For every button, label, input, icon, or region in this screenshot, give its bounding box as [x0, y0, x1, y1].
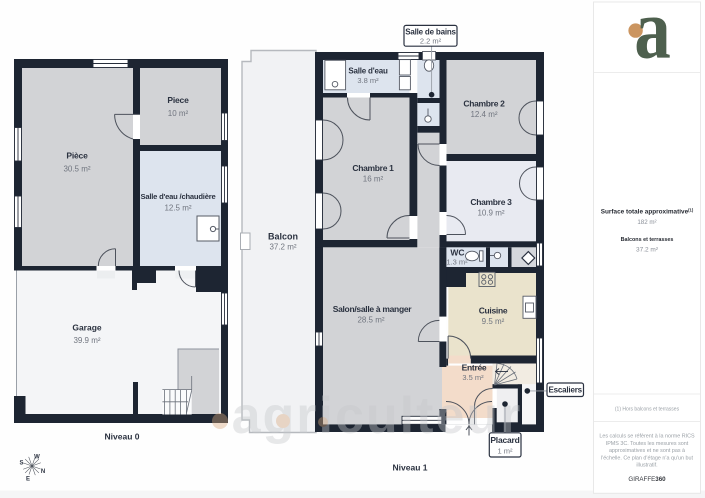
- svg-text:agriculteur: agriculteur: [232, 387, 523, 445]
- svg-text:Chambre 2: Chambre 2: [463, 99, 505, 109]
- svg-text:WC: WC: [450, 248, 464, 258]
- svg-text:Cuisine: Cuisine: [479, 306, 508, 316]
- svg-text:a: a: [634, 0, 671, 77]
- svg-text:S: S: [19, 461, 23, 467]
- svg-text:GIRAFFE360: GIRAFFE360: [628, 476, 666, 483]
- svg-text:16 m²: 16 m²: [363, 175, 384, 184]
- svg-text:Surface totale approximative(1: Surface totale approximative(1): [601, 208, 694, 216]
- svg-text:Garage: Garage: [72, 323, 102, 333]
- svg-text:Les calculs se réfèrent à la n: Les calculs se réfèrent à la norme RICS: [599, 434, 695, 440]
- svg-text:Salle d'eau: Salle d'eau: [348, 67, 388, 76]
- svg-text:illustratif.: illustratif.: [636, 463, 657, 469]
- svg-text:(1) Hors balcons et terrasses: (1) Hors balcons et terrasses: [615, 407, 680, 413]
- svg-text:10 m²: 10 m²: [168, 109, 189, 118]
- svg-text:IPMS 3C. Toutes les mesures so: IPMS 3C. Toutes les mesures sont: [606, 441, 689, 447]
- svg-text:Piece: Piece: [167, 95, 189, 105]
- svg-text:12.5 m²: 12.5 m²: [164, 204, 191, 213]
- svg-text:W: W: [34, 455, 40, 461]
- svg-text:1 m²: 1 m²: [498, 447, 514, 456]
- svg-text:Salle d'eau /chaudière: Salle d'eau /chaudière: [140, 192, 215, 201]
- svg-text:39.9 m²: 39.9 m²: [73, 336, 100, 345]
- svg-text:Chambre 1: Chambre 1: [352, 163, 394, 173]
- svg-text:3.5 m²: 3.5 m²: [462, 373, 484, 382]
- svg-text:9.5 m²: 9.5 m²: [482, 317, 505, 326]
- svg-text:Chambre 3: Chambre 3: [470, 197, 512, 207]
- svg-text:Niveau 0: Niveau 0: [105, 432, 140, 442]
- svg-text:3.8 m²: 3.8 m²: [357, 76, 379, 85]
- svg-text:10.9 m²: 10.9 m²: [477, 209, 504, 218]
- svg-text:l'échelle. Ce plan d'étage n'a: l'échelle. Ce plan d'étage n'a qu'un but: [601, 455, 693, 461]
- svg-text:37.2 m²: 37.2 m²: [269, 243, 296, 252]
- svg-text:28.5 m²: 28.5 m²: [357, 316, 384, 325]
- svg-text:Balcon: Balcon: [268, 232, 298, 242]
- svg-text:Escaliers: Escaliers: [549, 386, 583, 395]
- svg-text:N: N: [41, 469, 45, 475]
- svg-text:Pièce: Pièce: [66, 151, 88, 161]
- svg-text:30.5 m²: 30.5 m²: [63, 165, 90, 174]
- svg-text:Salon/salle à manger: Salon/salle à manger: [333, 304, 413, 314]
- svg-text:Niveau 1: Niveau 1: [393, 463, 428, 473]
- svg-text:37.2 m²: 37.2 m²: [636, 247, 659, 254]
- svg-text:182 m²: 182 m²: [637, 219, 656, 226]
- svg-text:1.3 m²: 1.3 m²: [446, 258, 468, 267]
- svg-text:12.4 m²: 12.4 m²: [470, 110, 497, 119]
- svg-text:Entrée: Entrée: [462, 363, 487, 373]
- svg-text:2.2 m²: 2.2 m²: [420, 37, 442, 46]
- svg-text:Salle de bains: Salle de bains: [405, 28, 456, 37]
- svg-text:Placard: Placard: [490, 435, 519, 445]
- svg-text:E: E: [26, 477, 30, 483]
- svg-text:Balcons et terrasses: Balcons et terrasses: [621, 237, 674, 243]
- svg-text:approximatives et ne sont pas: approximatives et ne sont pas à: [609, 448, 685, 454]
